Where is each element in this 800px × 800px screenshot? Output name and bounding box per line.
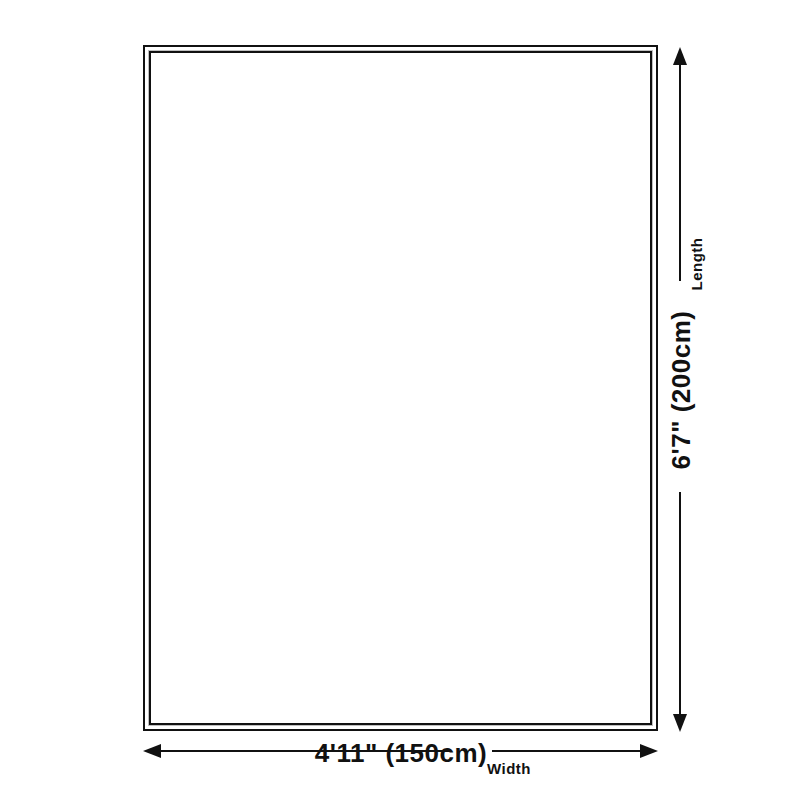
width-label: Width — [487, 760, 531, 777]
width-arrow-line-right — [492, 750, 642, 752]
arrow-down-icon — [673, 714, 687, 732]
width-dimension: 4'11" (150cm) — [315, 738, 487, 769]
arrow-right-icon — [640, 744, 658, 758]
product-outline-inner — [149, 51, 652, 725]
product-outline — [143, 45, 658, 731]
length-label: Length — [688, 238, 705, 291]
length-arrow-line-top — [679, 63, 681, 281]
length-arrow-line-bottom — [679, 492, 681, 716]
size-diagram: 6'7" (200cm) Length 4'11" (150cm) Width — [0, 0, 800, 800]
length-dimension: 6'7" (200cm) — [666, 311, 697, 470]
